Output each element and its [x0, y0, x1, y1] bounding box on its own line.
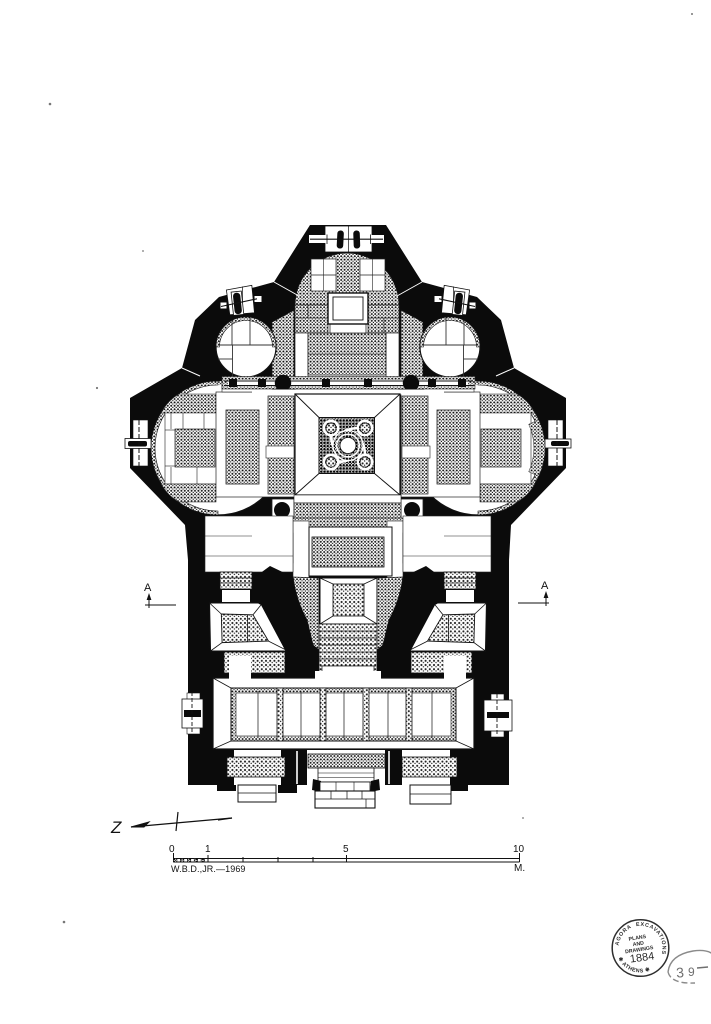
svg-text:5: 5 — [343, 844, 349, 855]
svg-text:A: A — [144, 582, 152, 594]
svg-text:10: 10 — [513, 844, 525, 855]
svg-text:1: 1 — [205, 844, 211, 855]
svg-text:9: 9 — [688, 965, 695, 979]
svg-text:3: 3 — [676, 964, 685, 981]
svg-text:A: A — [541, 580, 549, 592]
svg-text:W.B.D.,JR.—1969: W.B.D.,JR.—1969 — [171, 864, 246, 874]
svg-text:0: 0 — [169, 844, 175, 855]
svg-text:Z: Z — [110, 818, 122, 837]
svg-text:M.: M. — [514, 863, 525, 874]
